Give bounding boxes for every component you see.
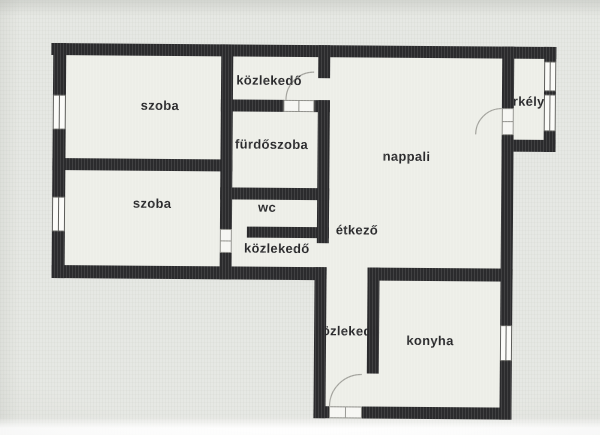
door-furdoszoba bbox=[284, 100, 314, 111]
wall-wc-kozlekedo-divider bbox=[247, 227, 329, 239]
floor-plan-drawing: szoba közlekedő fürdőszoba szoba wc közl… bbox=[0, 0, 600, 435]
wall-exterior-left-upper bbox=[53, 43, 66, 95]
wall-balcony-right-1 bbox=[544, 47, 556, 62]
room-label-wc: wc bbox=[257, 200, 276, 215]
wall-szoba-divider bbox=[52, 158, 232, 171]
window-balcony-lower bbox=[544, 95, 555, 131]
wall-exterior-bottom-1 bbox=[313, 406, 329, 418]
window-balcony-upper bbox=[544, 62, 555, 91]
wall-furdoszoba-wc-divider bbox=[220, 187, 329, 200]
room-label-szoba1: szoba bbox=[141, 98, 180, 113]
room-label-kozlekedo-left: közlekedő bbox=[244, 241, 310, 257]
wall-exterior-east-lower bbox=[499, 361, 511, 420]
window-szoba2 bbox=[52, 197, 64, 231]
wall-furdoszoba-top-1 bbox=[221, 99, 284, 111]
window-szoba1 bbox=[53, 95, 65, 129]
wall-exterior-east-upper bbox=[500, 140, 513, 326]
room-label-furdoszoba: fürdőszoba bbox=[235, 136, 309, 152]
door-entrance bbox=[329, 407, 361, 418]
wall-balcony-right-2 bbox=[544, 91, 556, 95]
wall-nappali-west bbox=[317, 100, 330, 243]
wall-konyha-west bbox=[367, 268, 380, 374]
door-szoba2 bbox=[220, 229, 231, 252]
floor-plan-photo: szoba közlekedő fürdőszoba szoba wc közl… bbox=[0, 0, 600, 435]
room-label-kozlekedo-bottom: közlekedő bbox=[314, 323, 380, 339]
wall-konyha-top bbox=[368, 268, 513, 282]
room-label-szoba2: szoba bbox=[133, 196, 172, 211]
wall-exterior-bottom-left bbox=[52, 265, 327, 280]
room-label-erkely: erkély bbox=[505, 94, 545, 109]
wall-szoba-east-upper bbox=[220, 44, 233, 229]
wall-szoba-east-lower bbox=[220, 252, 232, 279]
wall-nappali-west-stub bbox=[318, 45, 330, 78]
room-label-etkezo: étkező bbox=[336, 222, 378, 237]
room-label-kozlekedo-top: közlekedő bbox=[236, 72, 302, 88]
wall-balcony-right-3 bbox=[544, 131, 556, 152]
wall-exterior-bottom-2 bbox=[361, 406, 511, 419]
door-balcony bbox=[502, 109, 513, 135]
room-label-konyha: konyha bbox=[406, 333, 454, 348]
room-label-nappali: nappali bbox=[383, 149, 431, 164]
wall-corridor-west bbox=[313, 267, 326, 418]
window-konyha bbox=[500, 326, 511, 361]
